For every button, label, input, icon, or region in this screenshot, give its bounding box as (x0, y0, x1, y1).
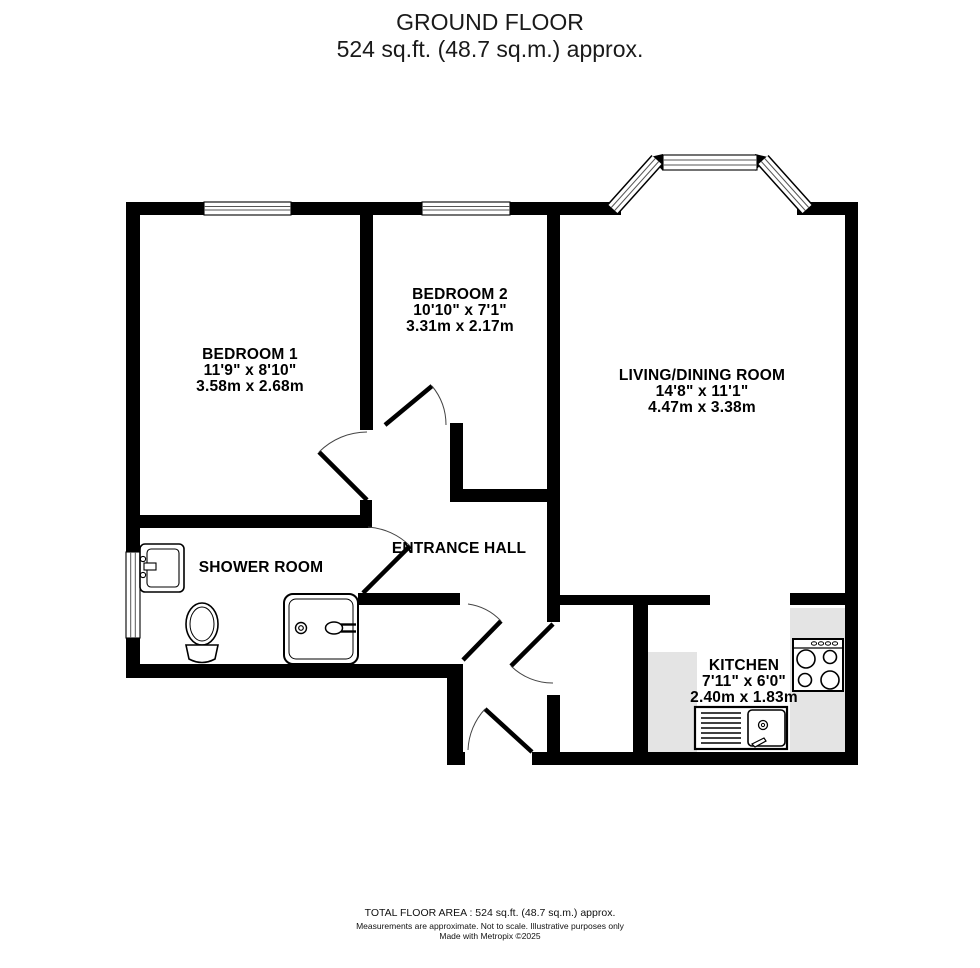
door-bedroom2 (385, 386, 446, 425)
door-cupboard (511, 624, 553, 683)
room-label-bedroom2: BEDROOM 2 10'10" x 7'1" 3.31m x 2.17m (406, 286, 514, 335)
kitchen-imperial: 7'11" x 6'0" (702, 673, 786, 690)
bedroom1-metric: 3.58m x 2.68m (196, 378, 304, 395)
kitchen-name: KITCHEN (709, 657, 779, 674)
bedroom1-imperial: 11'9" x 8'10" (204, 362, 297, 379)
door-shower-room (363, 527, 410, 593)
door-front-entrance (468, 709, 532, 752)
shower-enclosure-icon (284, 594, 358, 664)
footer-measurements-note: Measurements are approximate. Not to sca… (356, 921, 625, 931)
footer-disclaimer: TOTAL FLOOR AREA : 524 sq.ft. (48.7 sq.m… (356, 907, 625, 941)
living-metric: 4.47m x 3.38m (648, 399, 756, 416)
room-label-hall: ENTRANCE HALL (392, 540, 526, 557)
bedroom2-imperial: 10'10" x 7'1" (413, 302, 507, 319)
room-label-shower: SHOWER ROOM (199, 559, 323, 576)
door-hall-vestibule (463, 604, 501, 660)
toilet-icon (186, 603, 218, 663)
floorplan-page: GROUND FLOOR 524 sq.ft. (48.7 sq.m.) app… (0, 0, 980, 968)
bedroom1-name: BEDROOM 1 (202, 346, 298, 363)
bedroom2-metric: 3.31m x 2.17m (406, 318, 514, 335)
room-label-living: LIVING/DINING ROOM 14'8" x 11'1" 4.47m x… (619, 367, 785, 416)
footer-total-area: TOTAL FLOOR AREA : 524 sq.ft. (48.7 sq.m… (365, 907, 616, 919)
door-bedroom1 (319, 432, 367, 500)
bedroom2-name: BEDROOM 2 (412, 286, 508, 303)
kitchen-sink-icon (695, 707, 787, 749)
footer-credit: Made with Metropix ©2025 (439, 931, 541, 941)
living-name: LIVING/DINING ROOM (619, 367, 785, 384)
room-label-bedroom1: BEDROOM 1 11'9" x 8'10" 3.58m x 2.68m (196, 346, 304, 395)
hob-icon (793, 639, 843, 691)
room-label-kitchen: KITCHEN 7'11" x 6'0" 2.40m x 1.83m (690, 657, 798, 706)
floorplan-drawing: GROUND FLOOR 524 sq.ft. (48.7 sq.m.) app… (0, 0, 980, 968)
wash-basin-icon (140, 544, 184, 592)
kitchen-metric: 2.40m x 1.83m (690, 689, 798, 706)
page-subtitle-area: 524 sq.ft. (48.7 sq.m.) approx. (337, 36, 644, 62)
bay-window-icon (611, 155, 808, 211)
page-title: GROUND FLOOR (396, 9, 584, 35)
living-imperial: 14'8" x 11'1" (656, 383, 749, 400)
